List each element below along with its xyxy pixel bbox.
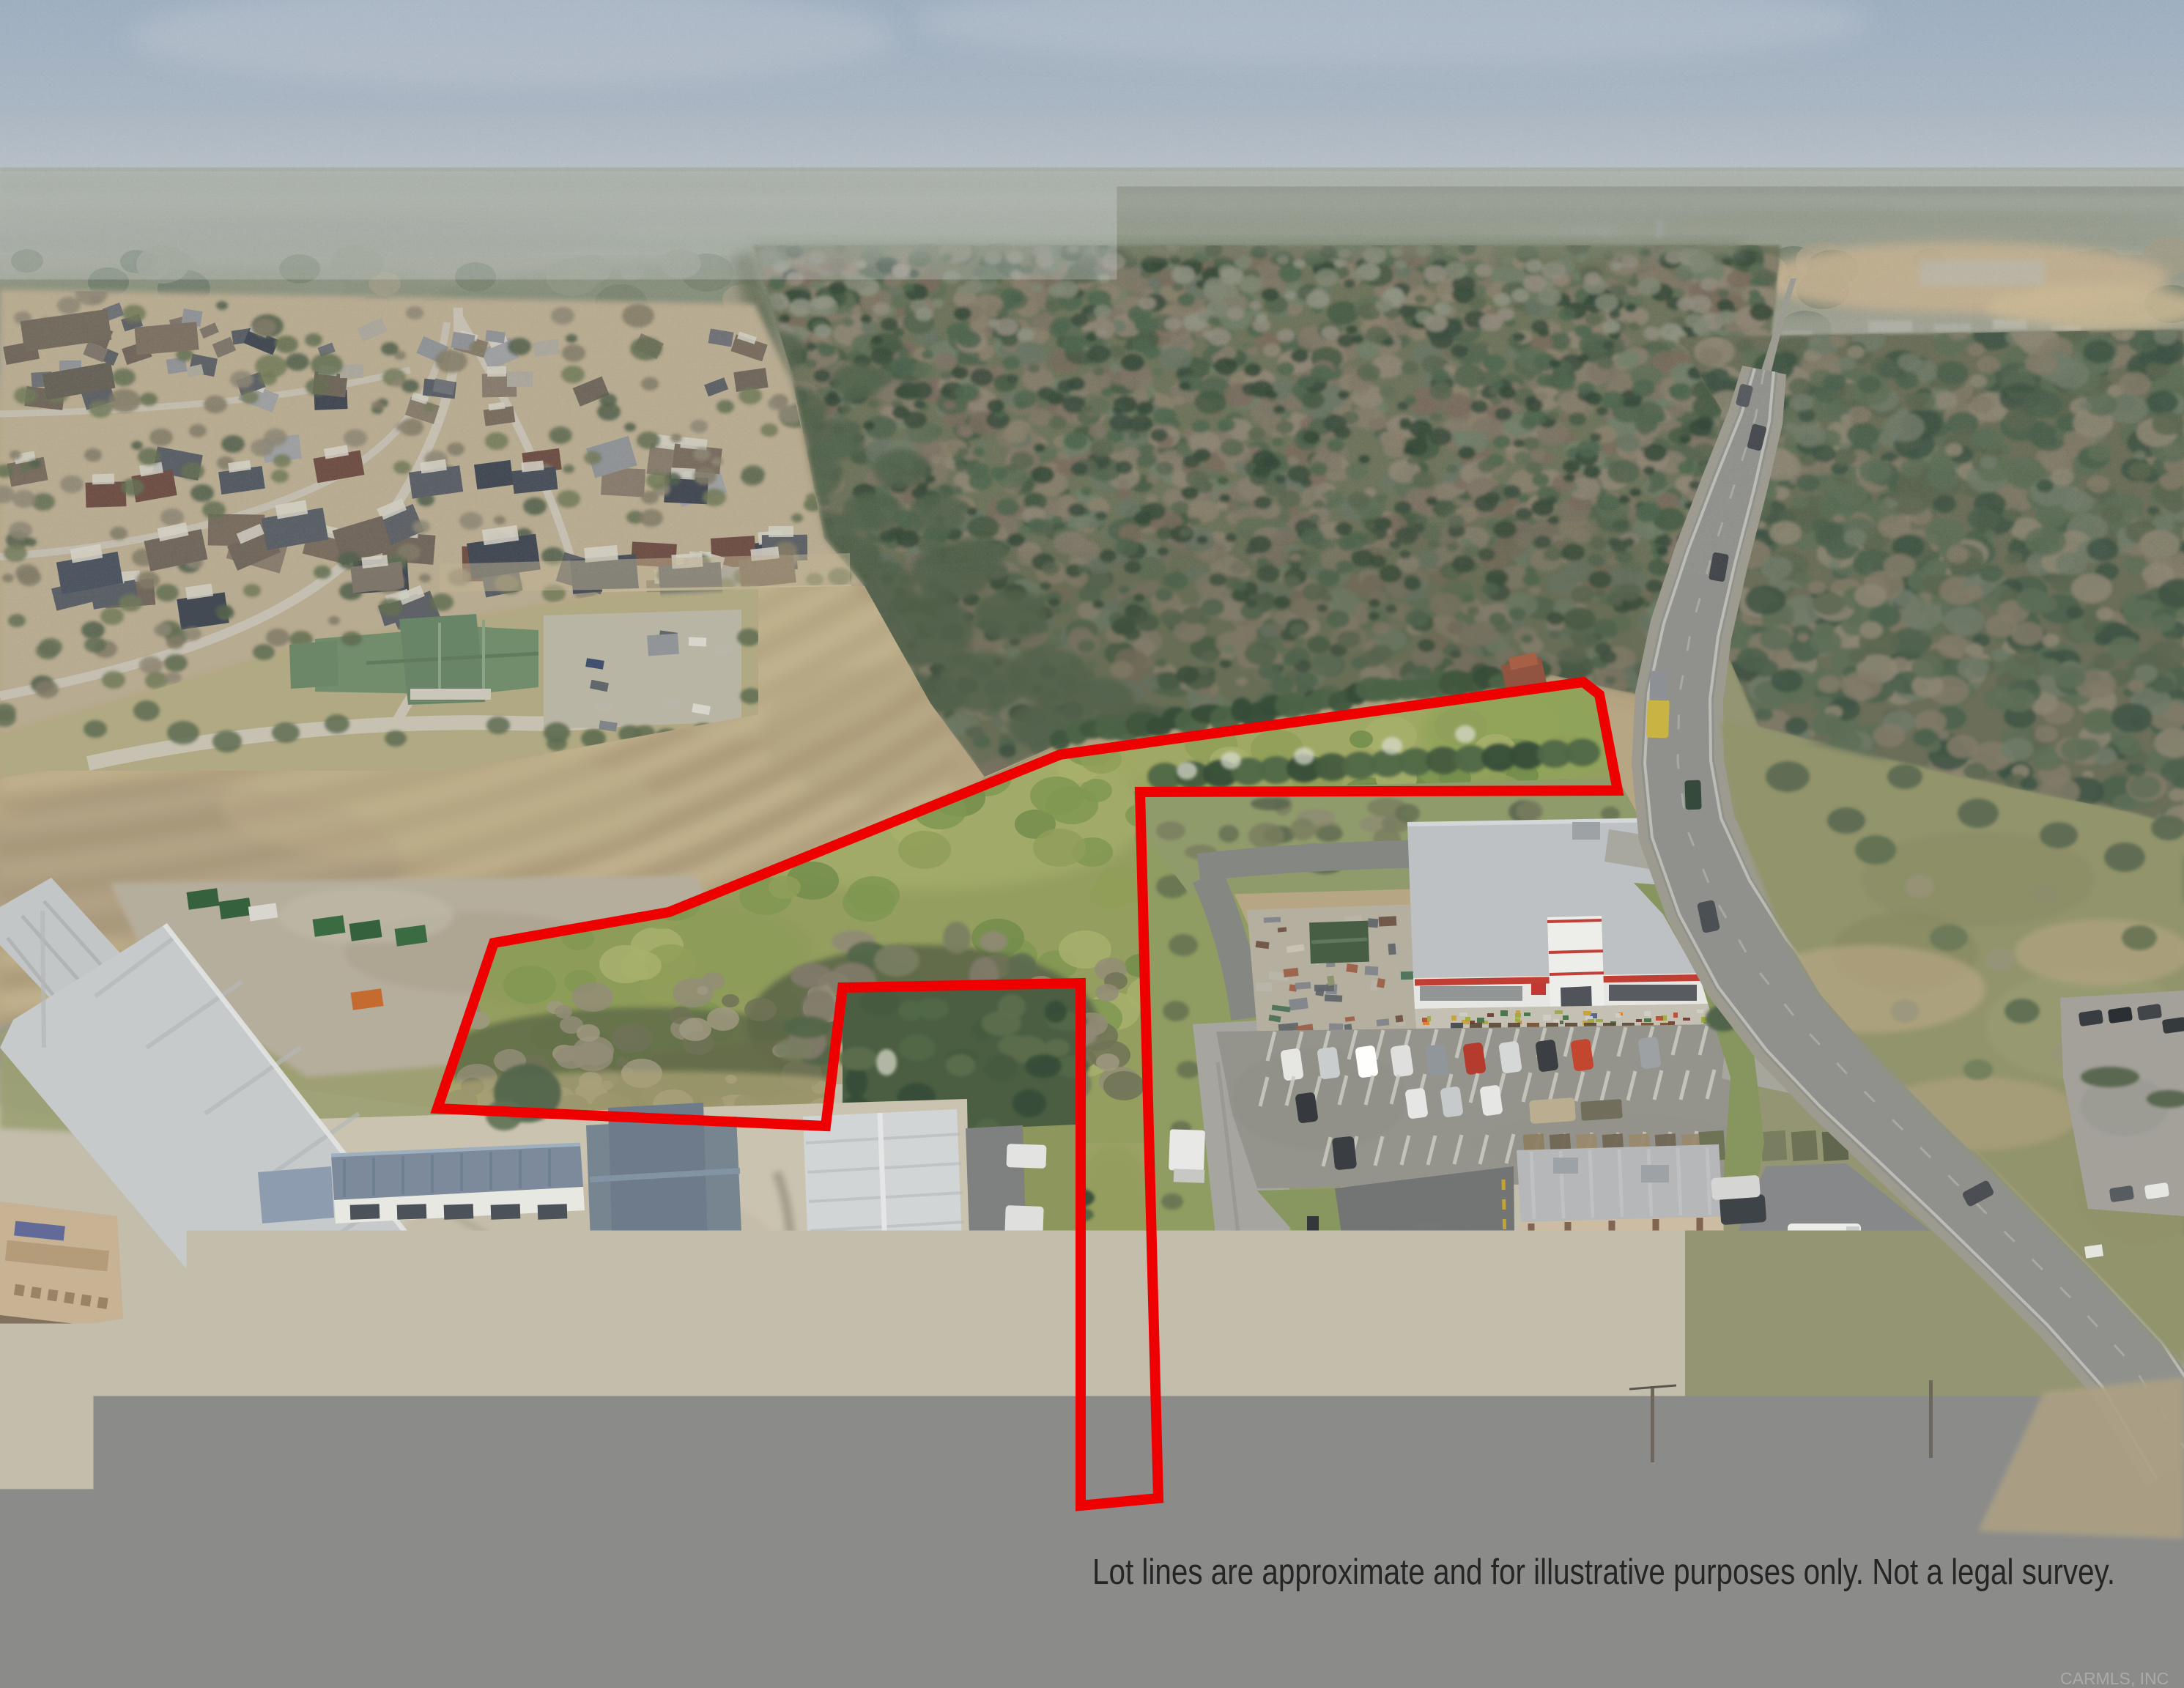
svg-text:CARMLS, INC: CARMLS, INC [2060, 1669, 2169, 1688]
svg-text:Lot lines are approximate and: Lot lines are approximate and for illust… [1092, 1552, 2115, 1592]
